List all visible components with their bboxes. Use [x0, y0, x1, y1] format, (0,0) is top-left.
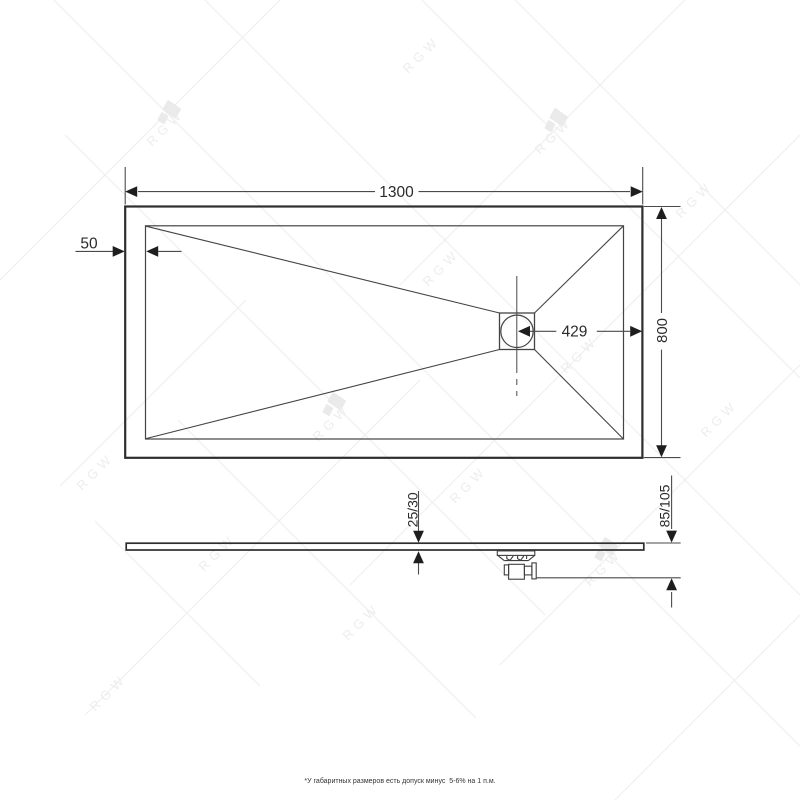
svg-text:85/105: 85/105: [656, 484, 672, 527]
svg-text:429: 429: [562, 323, 588, 340]
svg-text:25/30: 25/30: [404, 492, 420, 527]
svg-text:50: 50: [80, 236, 98, 253]
svg-text:1300: 1300: [379, 184, 414, 201]
svg-text:*У габаритных размеров есть до: *У габаритных размеров есть допуск минус…: [304, 777, 495, 785]
svg-text:800: 800: [654, 318, 671, 343]
